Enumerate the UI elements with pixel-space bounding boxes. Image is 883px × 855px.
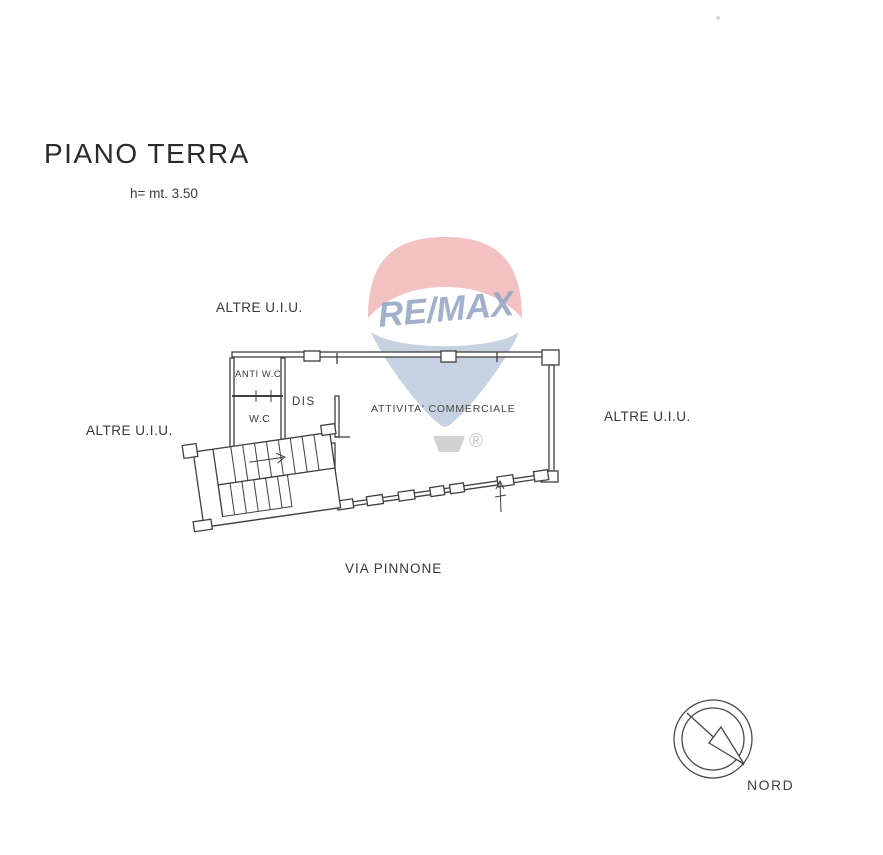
room-label-anti-wc: ANTI W.C <box>235 369 281 380</box>
street-wall-group <box>182 395 549 532</box>
room-label-wc: W.C <box>249 413 270 425</box>
room-label-dis: DIS <box>292 396 316 408</box>
adjacent-unit-label-left: ALTRE U.I.U. <box>86 423 173 438</box>
balloon-basket <box>433 436 465 452</box>
scan-artifact-dot <box>716 16 720 20</box>
wall-pillar <box>542 350 559 365</box>
remax-balloon-logo <box>368 237 522 452</box>
wall-pillar <box>398 490 415 501</box>
wall-pillar <box>366 495 383 506</box>
left-wall <box>230 358 234 454</box>
right-wall <box>549 365 554 473</box>
staircase <box>182 424 347 532</box>
wall-pillar <box>182 444 198 459</box>
north-compass-icon <box>674 700 752 778</box>
wall-pillar <box>441 351 456 362</box>
room-label-commercial: ATTIVITA' COMMERCIALE <box>371 403 515 415</box>
floor-plan-page: PIANO TERRA h= mt. 3.50 RE/MAX ® ALTRE U… <box>0 0 883 855</box>
adjacent-unit-label-right: ALTRE U.I.U. <box>604 409 691 424</box>
street-label: VIA PINNONE <box>345 561 442 576</box>
wc-dis-divider-wall <box>281 358 285 448</box>
registered-trademark-symbol: ® <box>469 431 483 453</box>
wall-pillar <box>430 486 445 497</box>
wall-pillar <box>497 475 514 487</box>
height-note: h= mt. 3.50 <box>130 186 198 201</box>
adjacent-unit-label-top: ALTRE U.I.U. <box>216 300 303 315</box>
top-wall <box>232 352 558 357</box>
wall-pillar <box>533 470 548 482</box>
wall-pillar <box>321 424 336 436</box>
compass-north-label: NORD <box>747 777 794 793</box>
wall-pillar <box>193 519 212 531</box>
page-title: PIANO TERRA <box>44 138 250 170</box>
wall-pillar <box>304 351 320 361</box>
compass-needle-head <box>709 727 744 764</box>
wall-pillar <box>449 483 464 494</box>
